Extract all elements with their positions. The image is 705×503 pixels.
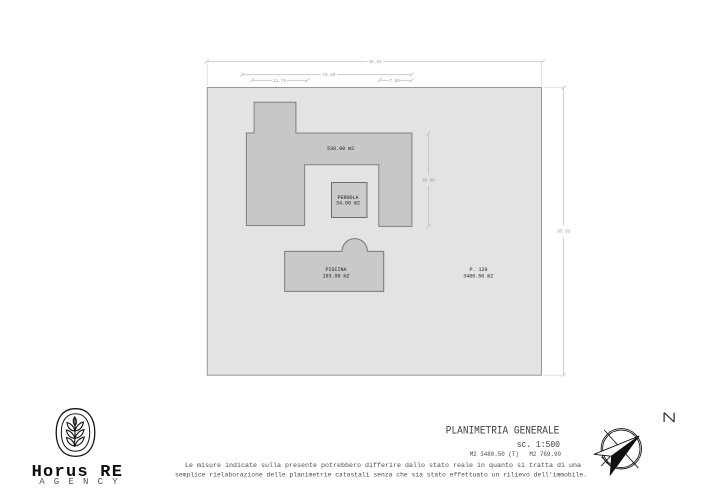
svg-text:7.80: 7.80 [390,79,401,84]
svg-text:Le misure indicate sulla prese: Le misure indicate sulla presente potreb… [185,462,581,469]
svg-text:3480.50 m2: 3480.50 m2 [463,273,493,279]
svg-text:103.00 m2: 103.00 m2 [322,273,349,279]
svg-text:P. 120: P. 120 [469,267,487,273]
svg-text:semplice rielaborazione delle: semplice rielaborazione delle planimetri… [175,471,587,478]
svg-text:PISCINA: PISCINA [325,267,346,273]
svg-text:85.93: 85.93 [557,230,570,235]
svg-text:19.60: 19.60 [323,73,336,78]
svg-text:sc. 1:500: sc. 1:500 [517,439,561,450]
svg-text:530.90 m2: 530.90 m2 [327,146,354,152]
svg-text:M2 3480.50 (T) M2 769.90: M2 3480.50 (T) M2 769.90 [470,451,562,458]
svg-text:45.43: 45.43 [369,60,382,65]
svg-text:10.90: 10.90 [422,178,435,183]
svg-text:PLANIMETRIA GENERALE: PLANIMETRIA GENERALE [446,426,560,438]
svg-text:34.00 m2: 34.00 m2 [336,200,360,206]
svg-text:A G E N C Y: A G E N C Y [39,477,119,487]
svg-text:11.75: 11.75 [273,79,286,84]
